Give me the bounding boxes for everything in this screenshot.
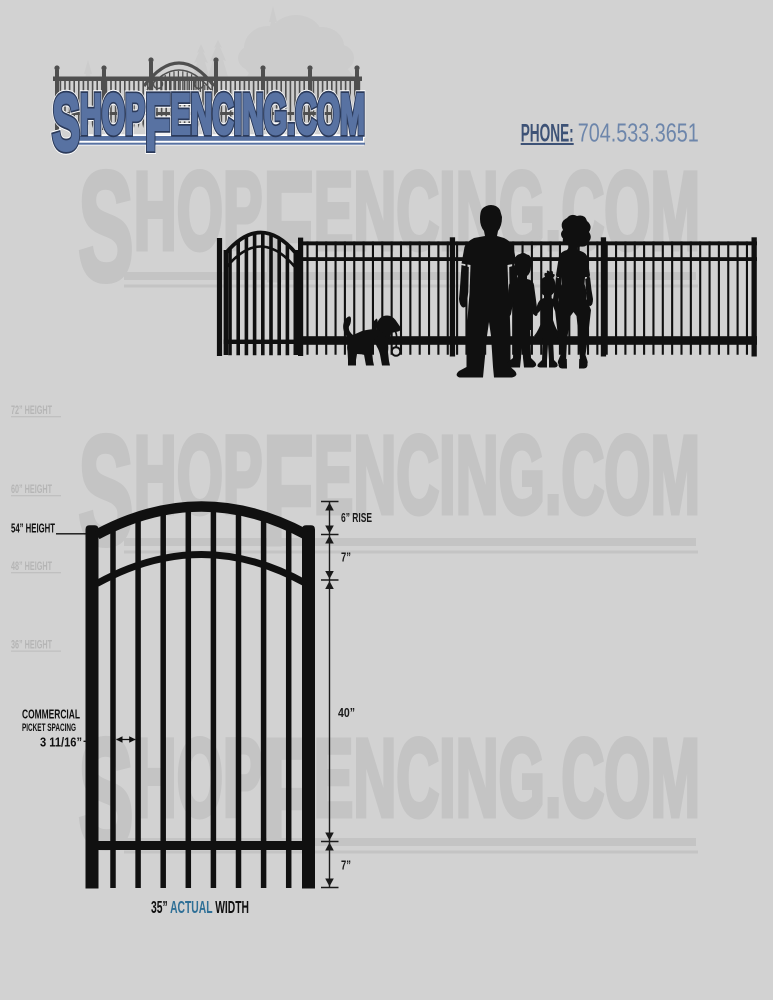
- svg-text:35” ACTUAL WIDTH: 35” ACTUAL WIDTH: [151, 897, 249, 917]
- svg-text:7”: 7”: [341, 550, 351, 565]
- svg-text:40”: 40”: [338, 705, 355, 720]
- svg-text:72” HEIGHT: 72” HEIGHT: [11, 404, 52, 417]
- svg-text:7”: 7”: [341, 858, 351, 873]
- svg-text:48” HEIGHT: 48” HEIGHT: [11, 560, 52, 573]
- svg-text:54” HEIGHT: 54” HEIGHT: [11, 522, 55, 536]
- svg-text:COMMERCIAL: COMMERCIAL: [22, 707, 80, 721]
- svg-text:6” RISE: 6” RISE: [341, 510, 372, 525]
- svg-text:3 11/16”: 3 11/16”: [40, 734, 82, 749]
- svg-text:704.533.3651: 704.533.3651: [578, 117, 699, 147]
- svg-text:60” HEIGHT: 60” HEIGHT: [11, 483, 52, 496]
- svg-text:36” HEIGHT: 36” HEIGHT: [11, 639, 52, 652]
- svg-text:PICKET SPACING: PICKET SPACING: [22, 722, 76, 734]
